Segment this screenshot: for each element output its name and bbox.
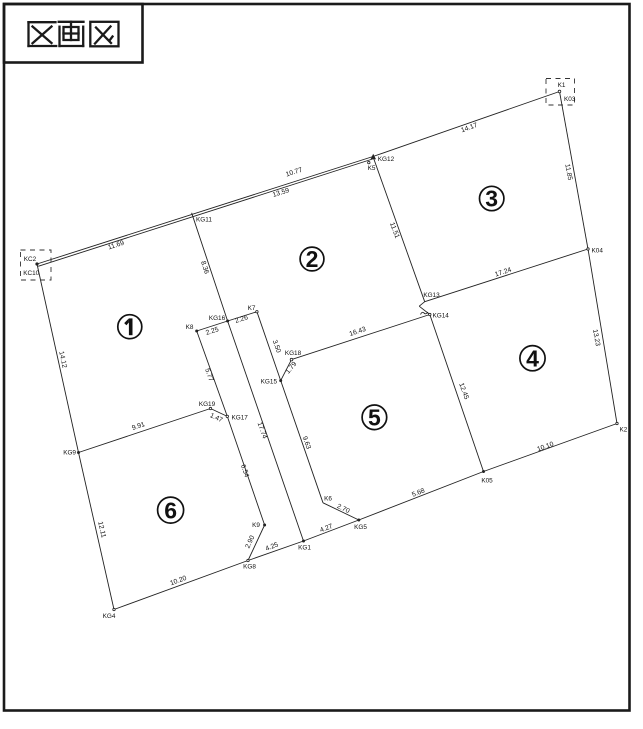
svg-text:KG18: KG18: [285, 350, 302, 357]
svg-text:KG1: KG1: [298, 545, 311, 552]
svg-text:KG16: KG16: [209, 315, 226, 322]
svg-text:K7: K7: [248, 305, 256, 312]
svg-text:KG5: KG5: [354, 524, 367, 531]
svg-text:KG11: KG11: [196, 217, 212, 224]
svg-text:K04: K04: [592, 248, 604, 255]
svg-text:KG17: KG17: [232, 414, 249, 421]
svg-text:KG8: KG8: [243, 564, 256, 571]
svg-text:K03: K03: [564, 96, 576, 103]
svg-text:KG9: KG9: [63, 450, 76, 457]
svg-text:KC2: KC2: [24, 256, 37, 263]
svg-text:3: 3: [485, 186, 498, 212]
svg-text:6: 6: [164, 497, 177, 523]
svg-text:K8: K8: [186, 324, 194, 331]
svg-text:KC10: KC10: [23, 270, 39, 277]
svg-text:K05: K05: [481, 478, 493, 485]
svg-text:K9: K9: [252, 522, 260, 529]
svg-text:KG12: KG12: [378, 156, 395, 163]
svg-text:K5: K5: [368, 165, 376, 172]
svg-text:KG14: KG14: [433, 312, 450, 319]
svg-text:KG15: KG15: [261, 378, 278, 385]
svg-text:K2: K2: [620, 427, 628, 434]
svg-text:K1: K1: [558, 82, 566, 89]
svg-text:KG4: KG4: [103, 613, 116, 620]
svg-text:K6: K6: [324, 496, 332, 503]
svg-text:5: 5: [368, 405, 381, 431]
svg-text:KG19: KG19: [199, 401, 216, 408]
svg-text:2: 2: [306, 246, 319, 272]
svg-text:KG13: KG13: [423, 292, 440, 299]
svg-text:4: 4: [526, 345, 539, 371]
